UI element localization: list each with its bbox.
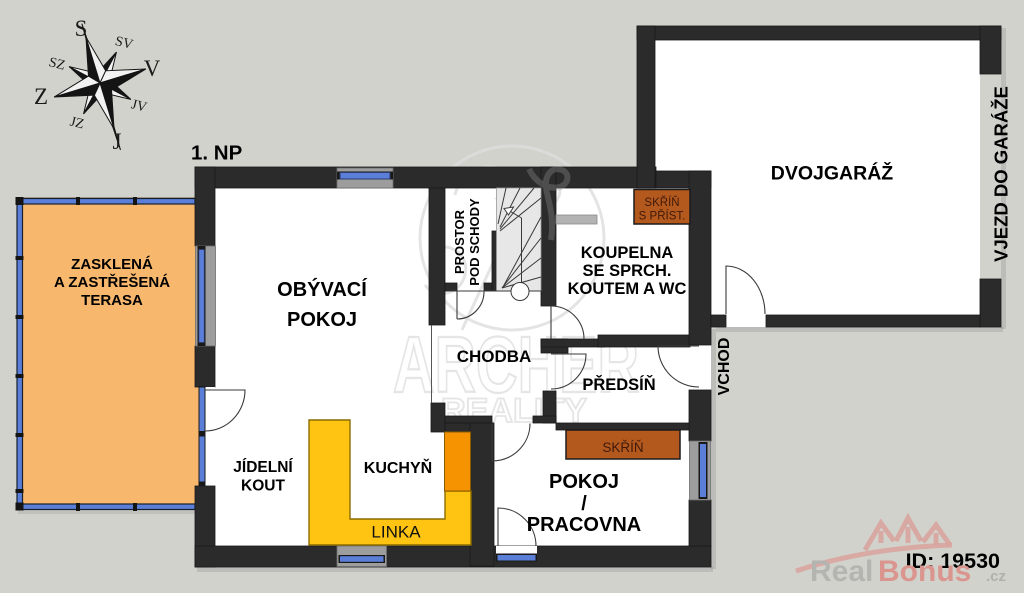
svg-text:KUCHYŇ: KUCHYŇ bbox=[364, 458, 432, 477]
svg-text:OBÝVACÍ: OBÝVACÍ bbox=[277, 277, 367, 301]
svg-text:/: / bbox=[581, 493, 587, 515]
svg-text:LINKA: LINKA bbox=[371, 523, 421, 542]
svg-text:A ZASTŘEŠENÁ: A ZASTŘEŠENÁ bbox=[54, 273, 170, 291]
svg-text:S PŘÍST.: S PŘÍST. bbox=[639, 210, 686, 223]
svg-text:VJEZD DO GARÁŽE: VJEZD DO GARÁŽE bbox=[991, 86, 1012, 262]
svg-text:.cz: .cz bbox=[986, 568, 1006, 585]
svg-text:Real: Real bbox=[810, 555, 873, 588]
svg-text:PRACOVNA: PRACOVNA bbox=[527, 514, 641, 536]
svg-text:PROSTOR: PROSTOR bbox=[452, 209, 467, 274]
svg-text:KOUT: KOUT bbox=[241, 478, 285, 495]
svg-text:DVOJGARÁŽ: DVOJGARÁŽ bbox=[771, 161, 894, 185]
svg-text:V: V bbox=[144, 56, 161, 81]
svg-text:1. NP: 1. NP bbox=[191, 142, 242, 165]
svg-text:Bonus: Bonus bbox=[878, 555, 971, 588]
svg-text:SE SPRCH.: SE SPRCH. bbox=[583, 262, 672, 280]
svg-text:J: J bbox=[113, 129, 122, 154]
svg-text:SKŘÍŇ: SKŘÍŇ bbox=[644, 196, 679, 209]
svg-text:PŘEDSÍŇ: PŘEDSÍŇ bbox=[582, 375, 655, 394]
svg-text:KOUPELNA: KOUPELNA bbox=[581, 244, 674, 262]
svg-text:CHODBA: CHODBA bbox=[457, 347, 532, 366]
svg-text:JÍDELNÍ: JÍDELNÍ bbox=[233, 459, 293, 476]
svg-text:S: S bbox=[75, 16, 88, 41]
svg-text:KOUTEM A WC: KOUTEM A WC bbox=[568, 280, 687, 298]
svg-text:VCHOD: VCHOD bbox=[716, 338, 733, 396]
svg-text:POKOJ: POKOJ bbox=[287, 309, 357, 331]
svg-text:ZASKLENÁ: ZASKLENÁ bbox=[71, 256, 153, 273]
svg-text:TERASA: TERASA bbox=[81, 292, 143, 309]
svg-text:Z: Z bbox=[34, 84, 48, 109]
svg-text:POD SCHODY: POD SCHODY bbox=[467, 198, 482, 286]
svg-text:POKOJ: POKOJ bbox=[549, 471, 619, 493]
svg-text:SKŘÍŇ: SKŘÍŇ bbox=[602, 440, 643, 455]
